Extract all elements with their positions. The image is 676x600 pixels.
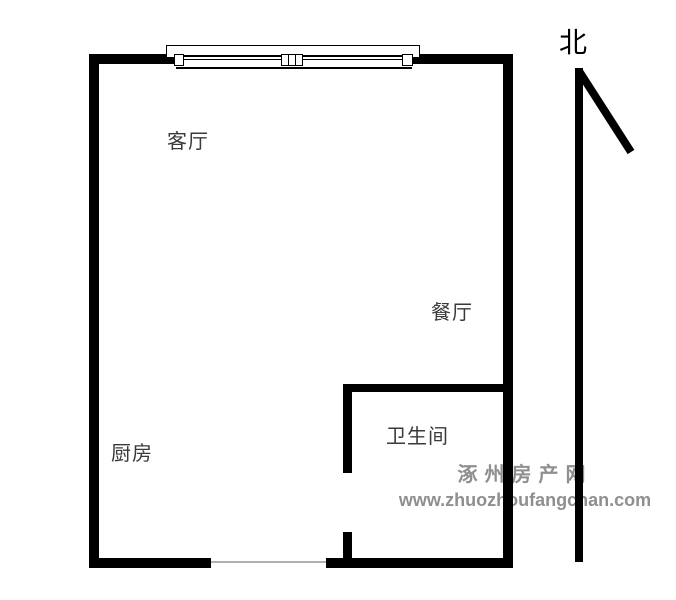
window-post — [402, 54, 413, 66]
room-label-kitchen: 厨房 — [111, 443, 153, 465]
watermark-site-name: 涿州房产网 — [385, 458, 665, 487]
north-label: 北 — [559, 29, 587, 57]
bathroom-wall-left-upper — [343, 384, 352, 473]
window-post — [295, 54, 303, 66]
room-label-living: 客厅 — [167, 131, 209, 153]
watermark-site-url: www.zhuozhoufangchan.com — [385, 490, 665, 511]
wall-top-left-segment — [89, 54, 176, 64]
bathroom-wall-left-lower — [343, 532, 352, 568]
wall-bottom-right-segment — [326, 558, 513, 568]
wall-right — [503, 54, 513, 568]
room-label-dining: 餐厅 — [431, 302, 473, 324]
watermark: 涿州房产网 www.zhuozhoufangchan.com — [385, 458, 665, 511]
bathroom-wall-top — [343, 384, 503, 392]
wall-bottom-left-segment — [89, 558, 211, 568]
floorplan-canvas: 北 客厅 餐厅 厨房 卫生间 涿州房产网 www.zhuozhoufangcha… — [0, 0, 676, 600]
wall-top-right-segment — [412, 54, 513, 64]
wall-left — [89, 54, 99, 568]
room-label-bathroom: 卫生间 — [386, 426, 449, 448]
north-arrow-line — [575, 68, 583, 562]
window-post — [174, 54, 184, 66]
entry-door-opening — [211, 561, 326, 563]
